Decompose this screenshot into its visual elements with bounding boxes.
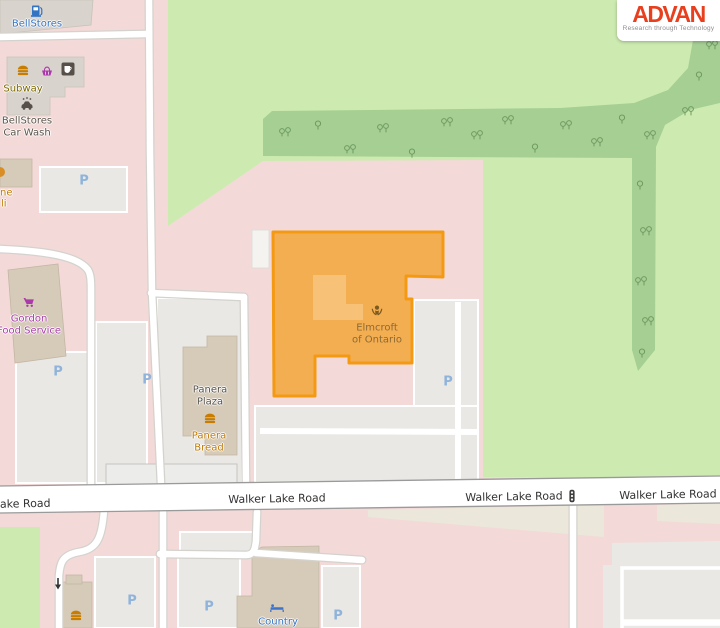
map-canvas[interactable]: BellStores Subway BellStores Car Wash ne…: [0, 0, 720, 628]
advan-logo-tagline: Research through Technology: [617, 25, 720, 32]
panera-burger-icon: [205, 414, 215, 424]
fast-food-burger-icon: [18, 66, 28, 76]
small-white-building: [252, 230, 269, 268]
building-strip-above-road: [106, 464, 237, 485]
elmcroft-inner-building: [313, 275, 346, 320]
tacobell-burger-icon: [71, 611, 81, 621]
elmcroft-inner-building-wing: [346, 304, 363, 320]
tacobell-building: [60, 582, 92, 628]
tacobell-building-top: [66, 575, 82, 584]
cafe-icon: [62, 63, 75, 76]
grass-patch-bottom-left: [0, 527, 40, 628]
gordon-building: [8, 264, 66, 363]
advan-logo: ADVAN Research through Technology: [617, 0, 720, 41]
traffic-signal-icon: [568, 489, 575, 503]
retail-strip-right: [657, 503, 720, 524]
advan-logo-brand: ADVAN: [617, 2, 720, 26]
bellstores-building: [0, 0, 93, 34]
